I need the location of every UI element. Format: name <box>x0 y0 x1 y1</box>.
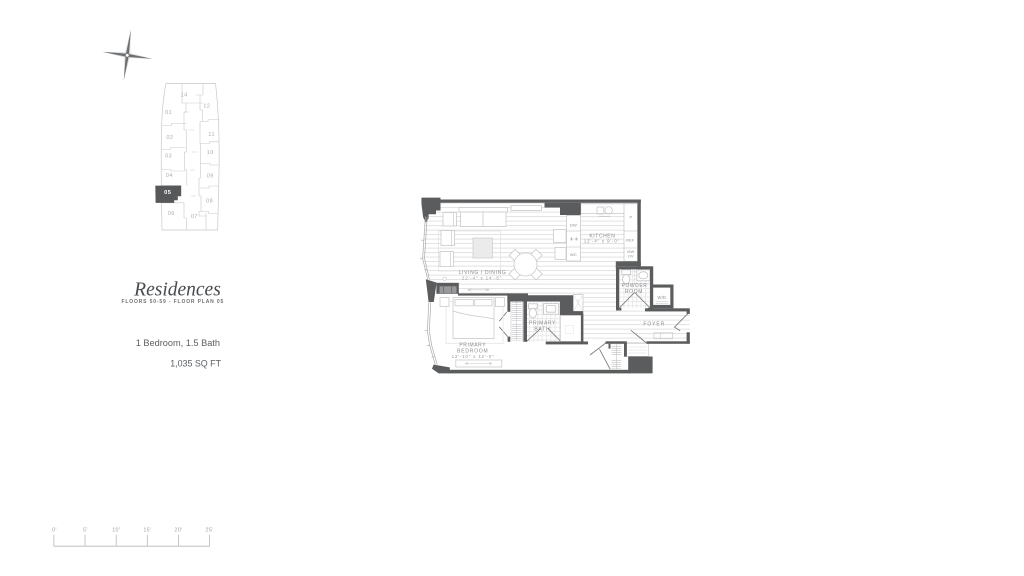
svg-text:FOYER: FOYER <box>643 322 665 328</box>
svg-text:REF: REF <box>626 237 635 242</box>
svg-text:08: 08 <box>206 199 213 205</box>
svg-text:Residences: Residences <box>133 280 221 301</box>
svg-text:12: 12 <box>203 104 210 110</box>
svg-text:12'-10" x 12'-0": 12'-10" x 12'-0" <box>452 354 495 359</box>
svg-text:11: 11 <box>208 132 215 138</box>
svg-text:OV: OV <box>628 253 634 258</box>
svg-text:0': 0' <box>52 528 57 534</box>
svg-text:W/D: W/D <box>658 295 667 300</box>
svg-text:06: 06 <box>168 211 175 217</box>
svg-text:04: 04 <box>166 173 173 179</box>
svg-text:10: 10 <box>207 150 214 156</box>
svg-text:10': 10' <box>112 528 120 534</box>
svg-text:20': 20' <box>174 528 182 534</box>
svg-text:DW: DW <box>570 223 577 228</box>
svg-text:03: 03 <box>165 154 172 160</box>
svg-text:09: 09 <box>207 174 214 180</box>
svg-text:14: 14 <box>181 93 188 99</box>
svg-text:07: 07 <box>191 214 198 220</box>
svg-text:25': 25' <box>206 528 214 534</box>
svg-text:15': 15' <box>143 528 151 534</box>
svg-text:02: 02 <box>167 135 174 141</box>
svg-text:WC: WC <box>570 252 577 257</box>
svg-text:22'-4" x 14'-5": 22'-4" x 14'-5" <box>462 276 502 281</box>
svg-text:05: 05 <box>164 190 171 196</box>
svg-text:ROOM: ROOM <box>625 289 643 295</box>
svg-text:1 Bedroom, 1.5 Bath: 1 Bedroom, 1.5 Bath <box>136 338 220 348</box>
svg-text:1,035 SQ FT: 1,035 SQ FT <box>170 359 221 369</box>
svg-text:5': 5' <box>83 528 88 534</box>
svg-text:01: 01 <box>165 110 172 116</box>
svg-text:12'-4" x 9'-0": 12'-4" x 9'-0" <box>584 239 620 244</box>
svg-text:FLOORS 50-59 - FLOOR PLAN 05: FLOORS 50-59 - FLOOR PLAN 05 <box>121 299 224 305</box>
svg-text:P: P <box>629 214 632 219</box>
